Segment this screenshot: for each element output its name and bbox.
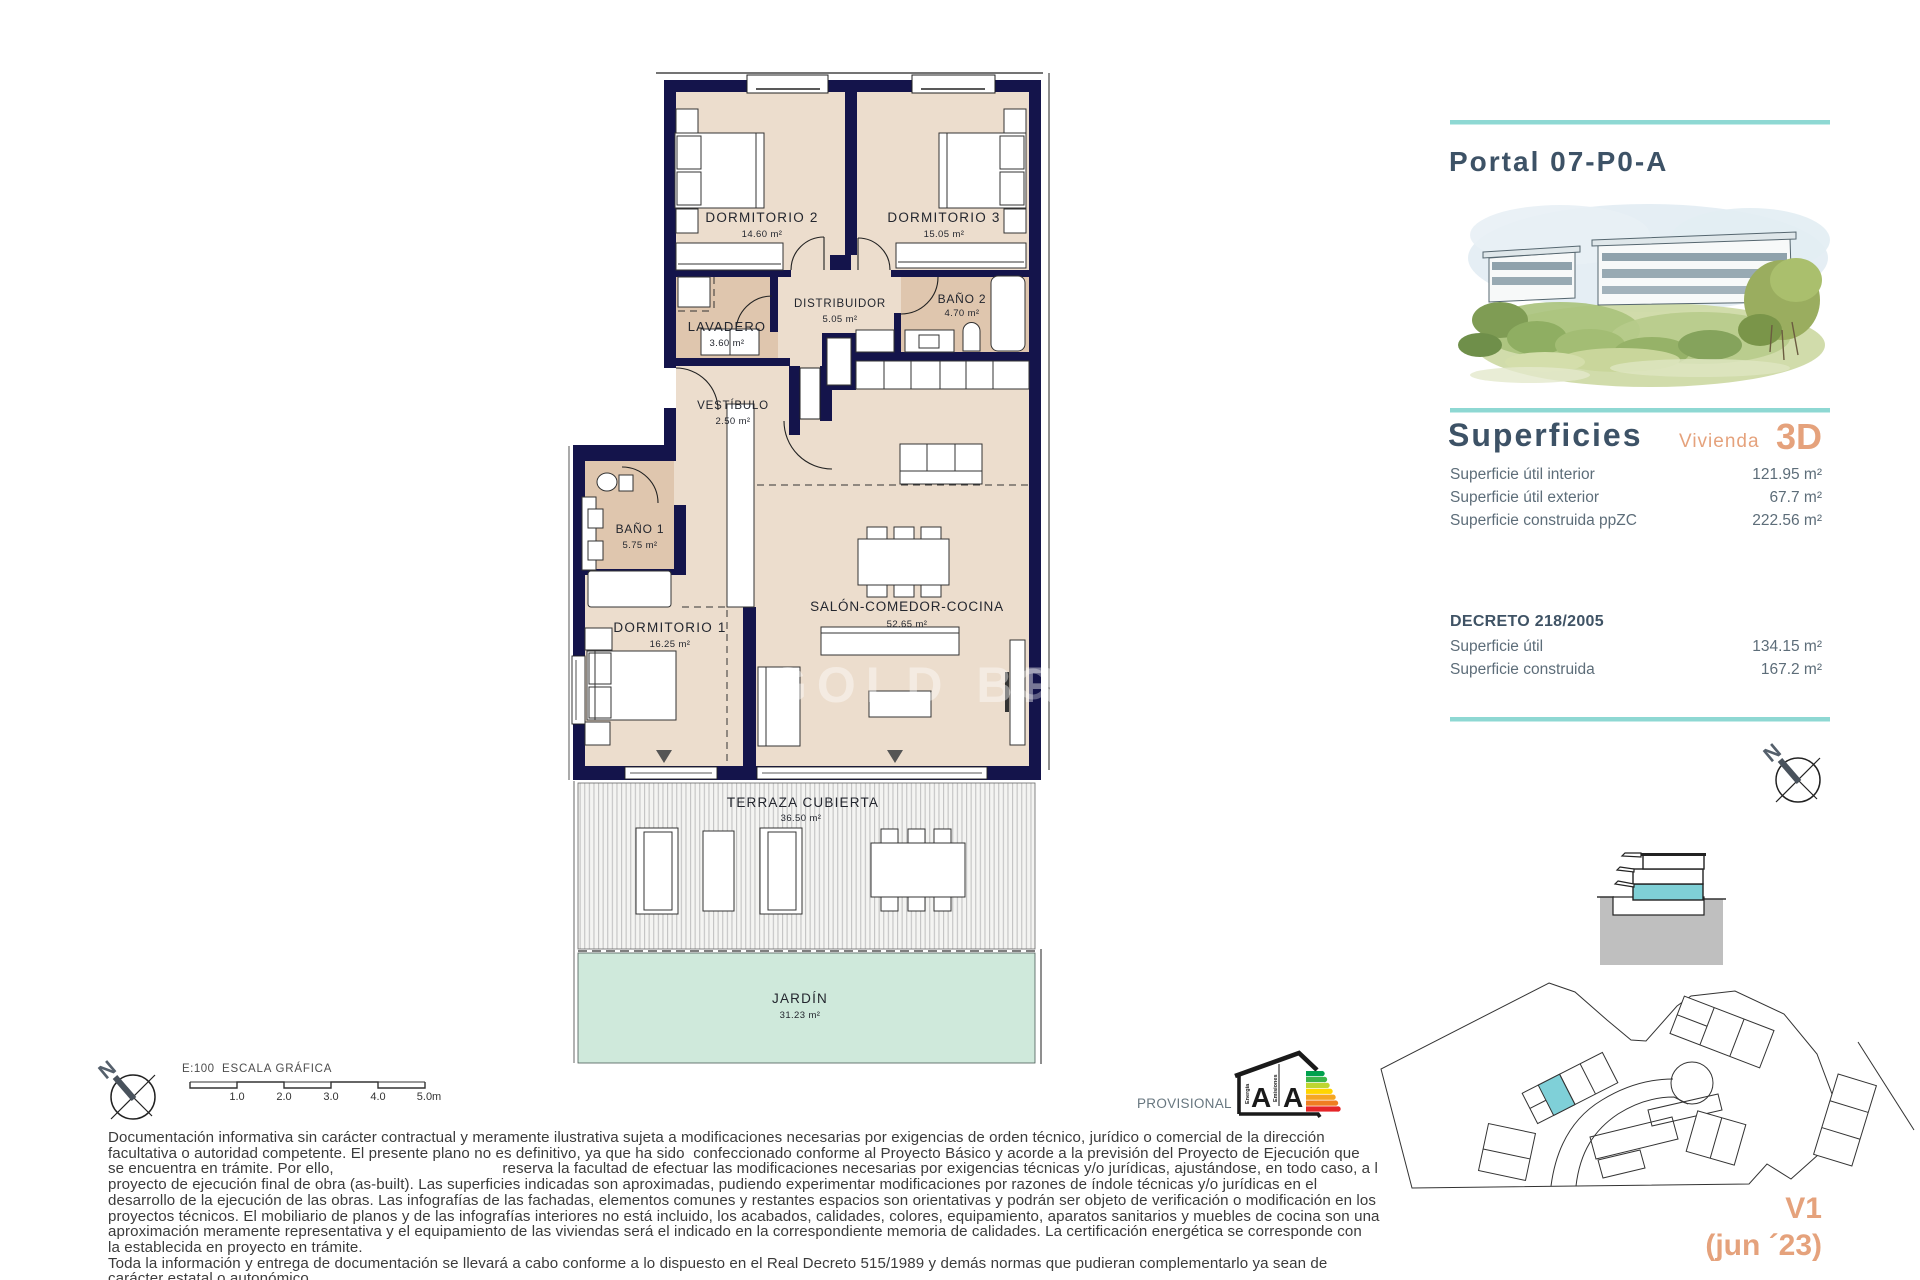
svg-text:DORMITORIO 1: DORMITORIO 1 [613,620,726,635]
svg-text:BAÑO 1: BAÑO 1 [616,522,665,536]
svg-text:Superficie útil: Superficie útil [1450,638,1543,655]
svg-text:31.23 m²: 31.23 m² [780,1010,821,1021]
svg-text:121.95 m²: 121.95 m² [1752,466,1822,483]
svg-text:E:100: E:100 [182,1063,215,1075]
svg-text:5.75 m²: 5.75 m² [622,540,657,551]
svg-text:2.0: 2.0 [276,1091,291,1103]
svg-text:52.65 m²: 52.65 m² [887,619,928,630]
svg-text:Vivienda: Vivienda [1679,431,1760,452]
svg-text:15.05 m²: 15.05 m² [924,229,965,240]
svg-text:5.05 m²: 5.05 m² [822,314,857,325]
svg-text:67.7 m²: 67.7 m² [1769,489,1822,506]
svg-text:A: A [1283,1082,1303,1113]
svg-text:DISTRIBUIDOR: DISTRIBUIDOR [794,298,886,310]
svg-text:3D: 3D [1776,416,1822,457]
svg-text:2.50 m²: 2.50 m² [715,416,750,427]
svg-text:3.60 m²: 3.60 m² [709,338,744,349]
svg-text:Superficie útil exterior: Superficie útil exterior [1450,489,1599,506]
svg-text:(jun ´23): (jun ´23) [1705,1229,1822,1262]
svg-text:BAÑO 2: BAÑO 2 [938,292,987,306]
svg-text:Superficie construida: Superficie construida [1450,661,1595,678]
svg-text:ESCALA GRÁFICA: ESCALA GRÁFICA [222,1062,332,1075]
svg-text:Superficie útil interior: Superficie útil interior [1450,466,1595,483]
svg-text:PROVISIONAL: PROVISIONAL [1137,1096,1232,1111]
svg-text:A: A [1251,1082,1271,1113]
svg-text:3.0: 3.0 [323,1091,338,1103]
svg-text:LAVADERO: LAVADERO [688,319,766,334]
svg-text:DECRETO 218/2005: DECRETO 218/2005 [1450,613,1604,630]
svg-text:TERRAZA CUBIERTA: TERRAZA CUBIERTA [727,795,879,810]
svg-text:36.50 m²: 36.50 m² [781,813,822,824]
svg-text:Superficies: Superficies [1448,417,1643,453]
svg-text:SALÓN-COMEDOR-COCINA: SALÓN-COMEDOR-COCINA [810,599,1004,614]
svg-text:V1: V1 [1785,1192,1822,1225]
svg-text:GOLD BRIC: GOLD BRIC [768,657,1139,713]
svg-text:DORMITORIO 3: DORMITORIO 3 [887,210,1000,225]
svg-text:14.60 m²: 14.60 m² [742,229,783,240]
svg-text:Portal 07-P0-A: Portal 07-P0-A [1449,146,1668,177]
svg-text:16.25 m²: 16.25 m² [650,639,691,650]
svg-text:JARDÍN: JARDÍN [772,991,828,1006]
svg-text:222.56 m²: 222.56 m² [1752,512,1822,529]
svg-text:4.70 m²: 4.70 m² [944,308,979,319]
svg-text:5.0m: 5.0m [417,1091,441,1103]
svg-text:4.0: 4.0 [370,1091,385,1103]
svg-text:134.15 m²: 134.15 m² [1752,638,1822,655]
svg-text:Emisiones: Emisiones [1273,1074,1279,1102]
svg-text:Energía: Energía [1245,1083,1251,1104]
svg-text:DORMITORIO 2: DORMITORIO 2 [705,210,818,225]
svg-text:167.2 m²: 167.2 m² [1761,661,1822,678]
svg-text:VESTÍBULO: VESTÍBULO [697,399,769,412]
svg-text:1.0: 1.0 [229,1091,244,1103]
svg-text:Superficie construida ppZC: Superficie construida ppZC [1450,512,1637,529]
